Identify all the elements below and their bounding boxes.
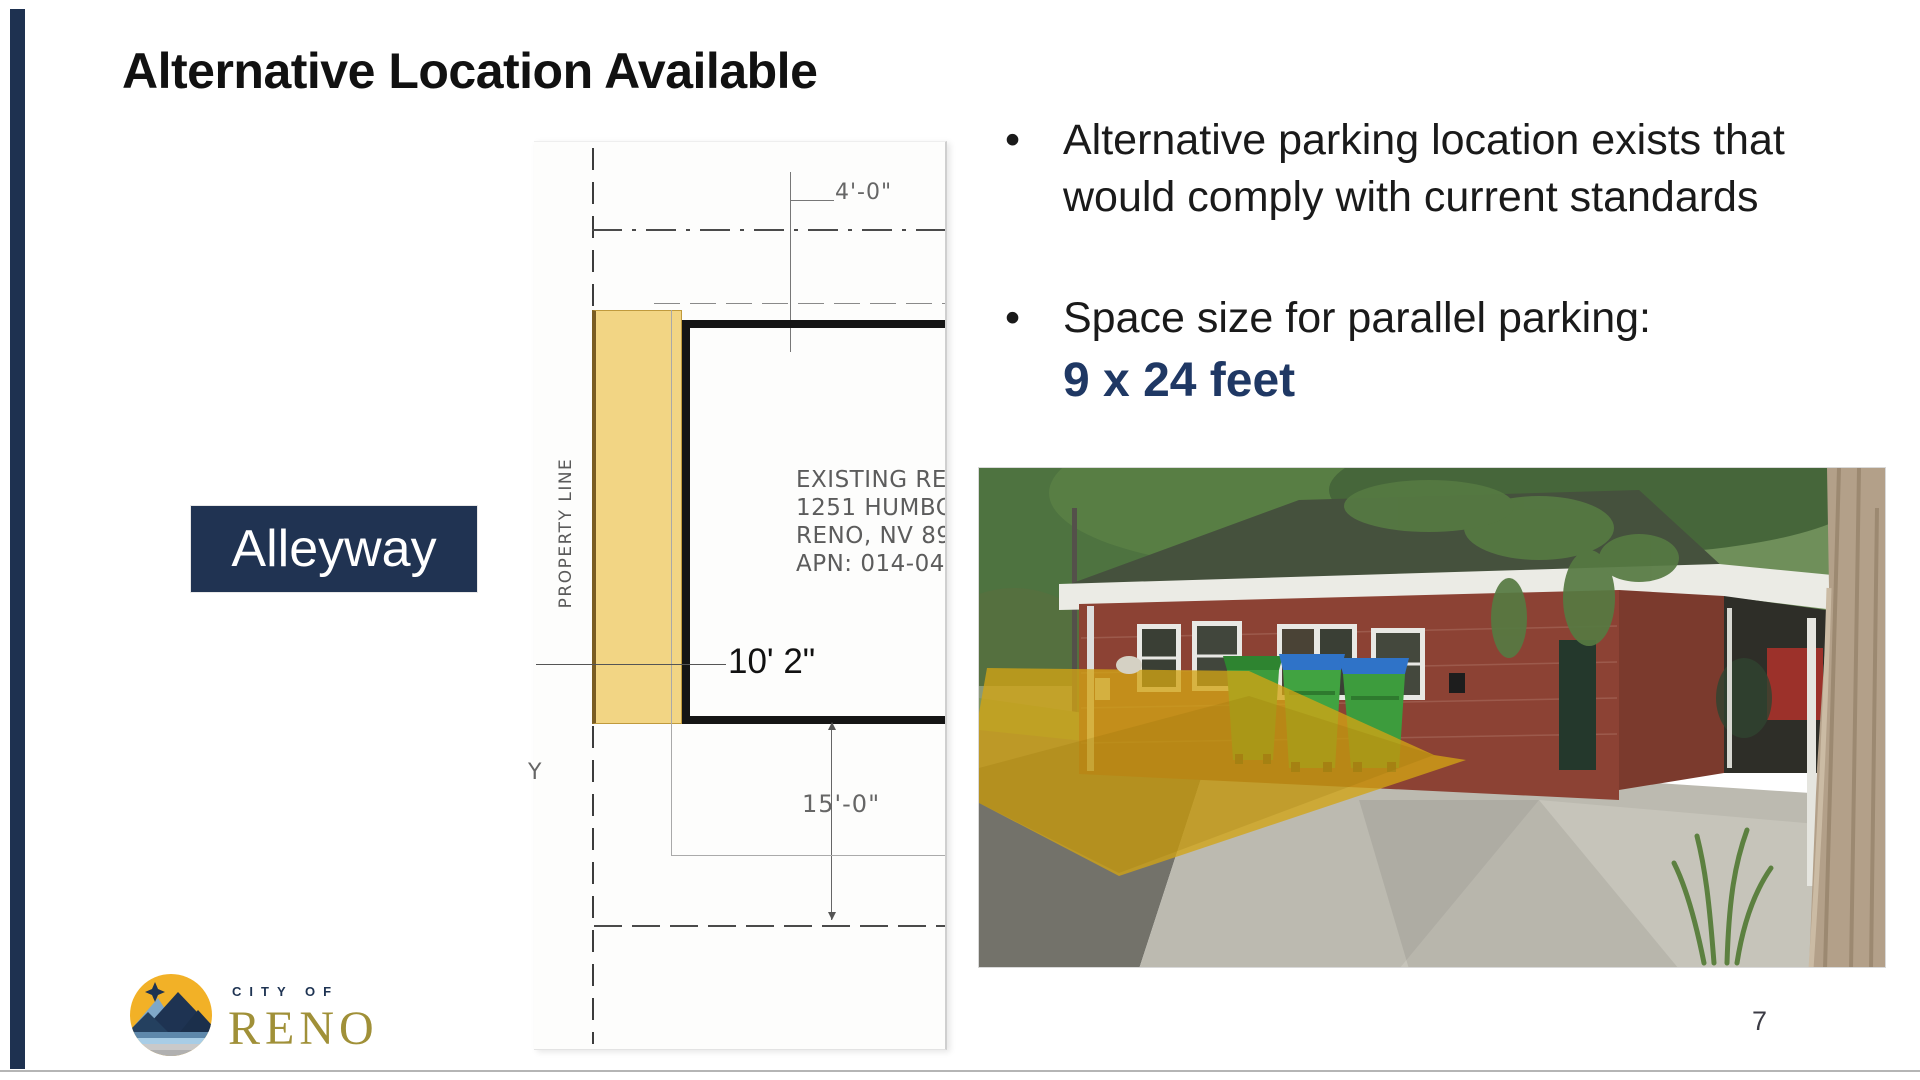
bottom-dimension-label: 15'-0": [802, 790, 880, 818]
bullet-marker: •: [1005, 290, 1063, 347]
slide-title: Alternative Location Available: [122, 42, 817, 100]
site-plan-drawing: 4'-0" PROPERTY LINE EXISTING RE 1251 HUM…: [534, 141, 947, 1050]
property-line-label: PROPERTY LINE: [556, 438, 578, 628]
city-of-reno-logo: CITY OF RENO: [128, 970, 400, 1065]
bottom-dimension-line: [831, 726, 832, 920]
alleyway-label-box: Alleyway: [190, 505, 478, 593]
bullet-list: • Alternative parking location exists th…: [1005, 112, 1895, 408]
presentation-slide: Alternative Location Available • Alterna…: [0, 0, 1920, 1080]
axis-y-label: Y: [528, 760, 541, 785]
building-wall-top: [682, 320, 945, 328]
page-number: 7: [1752, 1006, 1767, 1037]
building-wall-bottom: [682, 716, 945, 724]
width-dimension-leader: [536, 664, 726, 665]
bullet-item-2: • Space size for parallel parking:: [1005, 290, 1895, 347]
logo-reno-text: RENO: [228, 1002, 379, 1055]
parcel-address-block: EXISTING RE 1251 HUMBOL RENO, NV 89 APN:…: [796, 466, 947, 578]
house-door: [1559, 640, 1596, 770]
slide-bottom-rule: [0, 1070, 1920, 1072]
alley-photo: [978, 467, 1886, 968]
bottom-extension-line: [671, 855, 945, 856]
alley-edge-line: [592, 229, 945, 231]
width-dimension-label: 10' 2": [728, 642, 815, 682]
parking-space-highlight: [592, 310, 682, 724]
dimension-line-top: [790, 200, 834, 201]
dimension-top-label: 4'-0": [835, 180, 892, 205]
parking-size-value: 9 x 24 feet: [1063, 353, 1895, 408]
dimension-arrow-up: [828, 722, 836, 730]
logo-city-of-text: CITY OF: [232, 984, 339, 999]
bullet-item-1: • Alternative parking location exists th…: [1005, 112, 1895, 226]
bottom-dashed-line: [594, 925, 945, 927]
bullet-1-text: Alternative parking location exists that…: [1063, 112, 1785, 226]
bullet-2-text: Space size for parallel parking:: [1063, 290, 1651, 347]
wall-fixture: [1449, 673, 1465, 693]
alleyway-label: Alleyway: [231, 519, 436, 579]
bullet-marker: •: [1005, 112, 1063, 226]
dimension-arrow-down: [828, 912, 836, 920]
alley-edge-line-2: [654, 303, 945, 304]
alley-photo-illustration: [979, 468, 1886, 968]
rock: [1116, 656, 1142, 674]
dimension-extension-line: [671, 310, 672, 856]
slide-accent-bar: [10, 9, 25, 1069]
carport-post-rear: [1727, 608, 1732, 768]
